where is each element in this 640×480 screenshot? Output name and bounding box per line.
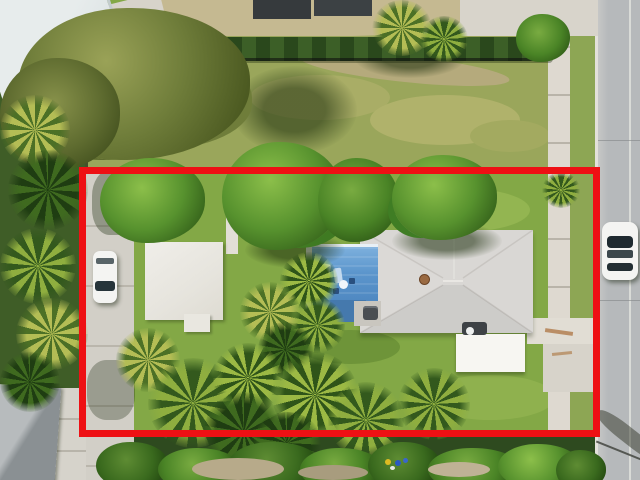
palm-tree — [420, 16, 468, 62]
car-street — [602, 222, 638, 280]
gravel-patch — [428, 462, 490, 477]
street-joint — [598, 140, 640, 141]
palm-tree — [0, 352, 60, 412]
blue-object — [395, 460, 401, 466]
white-object — [390, 466, 395, 470]
car-street-windshield — [607, 236, 633, 248]
palm-tree — [8, 150, 88, 230]
tree-shadow — [232, 66, 357, 154]
grass-patch — [470, 120, 550, 152]
yellow-object — [385, 459, 391, 465]
property-boundary-overlay — [79, 167, 600, 437]
neighbor-dark-roof — [314, 0, 372, 16]
shrub — [96, 442, 168, 480]
neighbor-dark-roof — [253, 0, 311, 19]
gravel-patch — [298, 465, 368, 480]
gravel-patch — [192, 458, 284, 480]
car-street-rear-window — [607, 263, 633, 271]
aerial-photo — [0, 0, 640, 480]
shrub — [556, 450, 606, 480]
blue-object — [403, 458, 408, 463]
palm-tree — [0, 228, 76, 304]
street-joint — [598, 300, 640, 301]
car-street-sunroof — [607, 250, 633, 258]
